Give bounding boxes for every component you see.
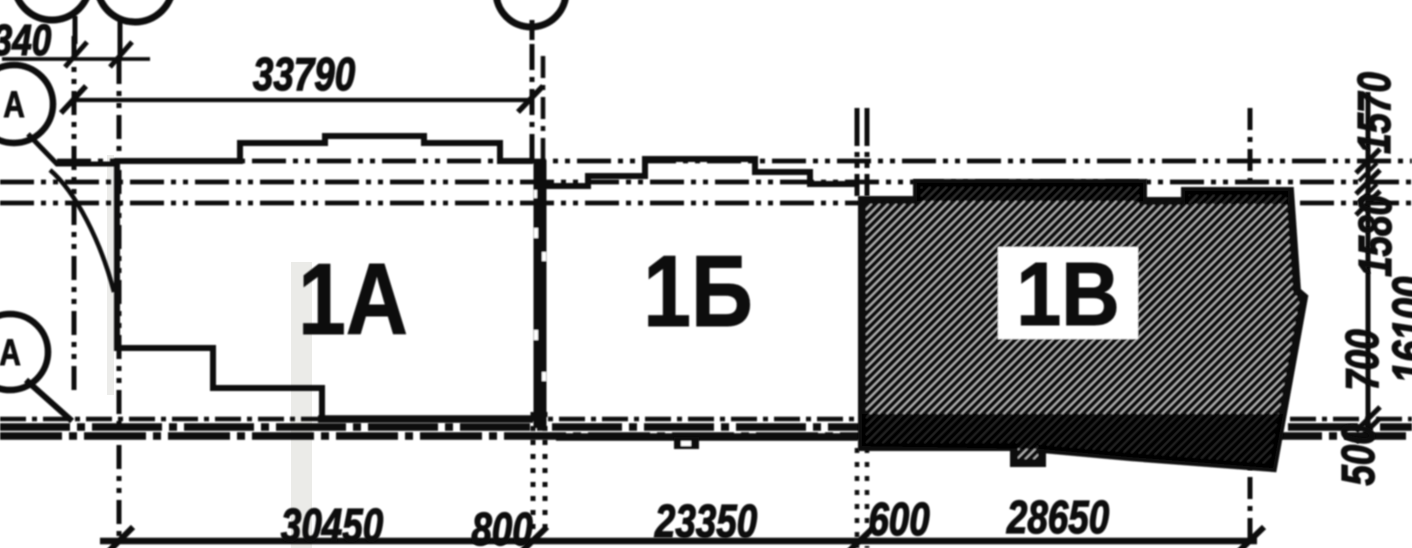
svg-text:1580: 1580 [1349, 195, 1401, 277]
svg-text:700: 700 [1336, 329, 1388, 390]
svg-text:А: А [0, 333, 21, 374]
svg-text:340: 340 [0, 16, 51, 65]
svg-text:1В: 1В [1016, 244, 1120, 345]
svg-text:500: 500 [1332, 424, 1384, 485]
svg-text:30450: 30450 [281, 499, 383, 548]
svg-text:23350: 23350 [654, 495, 757, 547]
svg-text:1А: 1А [298, 242, 408, 355]
svg-text:28650: 28650 [1006, 491, 1109, 543]
svg-text:1570: 1570 [1348, 72, 1400, 154]
svg-text:16100: 16100 [1384, 277, 1412, 384]
svg-text:1Б: 1Б [643, 234, 752, 347]
svg-text:33790: 33790 [253, 48, 355, 100]
svg-text:А: А [3, 85, 24, 126]
svg-text:600: 600 [868, 493, 929, 545]
svg-text:800: 800 [471, 503, 532, 548]
